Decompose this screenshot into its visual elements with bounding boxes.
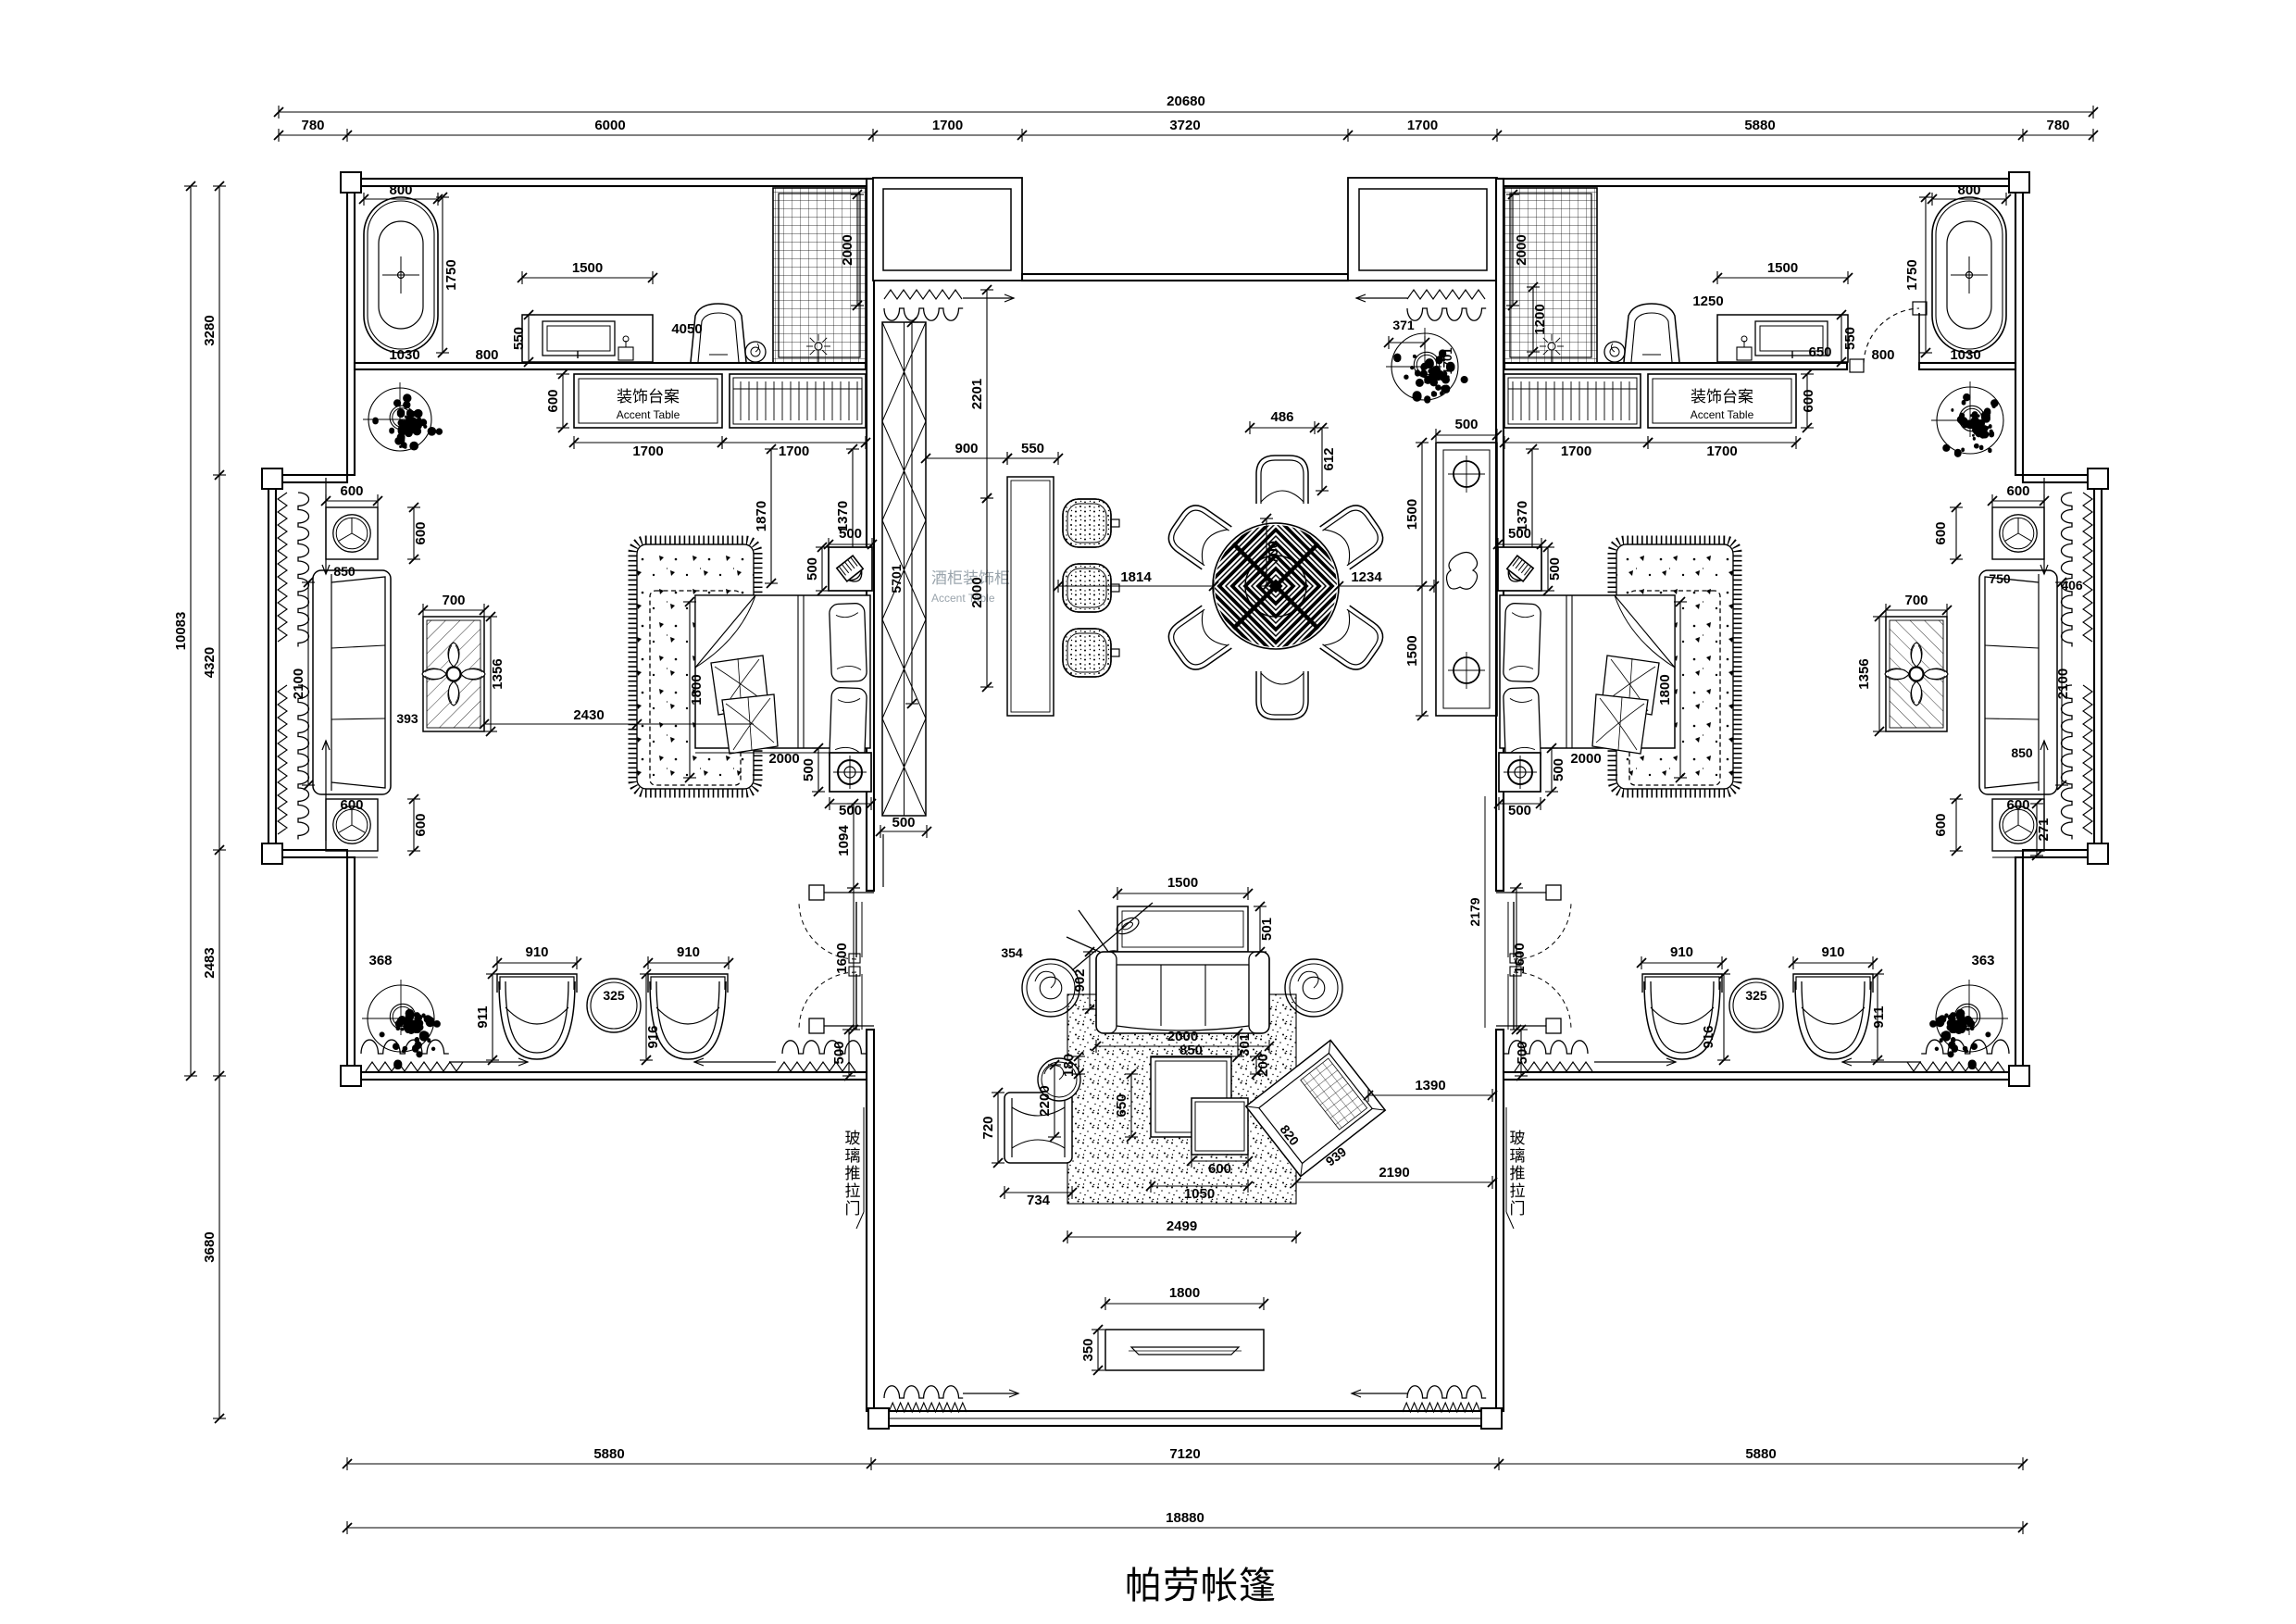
svg-text:1500: 1500 — [572, 260, 603, 276]
svg-text:368: 368 — [368, 953, 392, 968]
svg-text:1814: 1814 — [1120, 569, 1152, 585]
svg-text:600: 600 — [1208, 1161, 1231, 1177]
svg-text:1700: 1700 — [779, 443, 809, 459]
svg-text:1356: 1356 — [490, 658, 505, 689]
svg-text:1700: 1700 — [1561, 443, 1591, 459]
svg-text:装饰台案: 装饰台案 — [1691, 388, 1753, 406]
svg-text:4050: 4050 — [671, 321, 702, 337]
svg-text:1030: 1030 — [389, 347, 419, 363]
svg-text:486: 486 — [1270, 409, 1293, 425]
svg-text:1390: 1390 — [1415, 1078, 1445, 1093]
svg-text:2200: 2200 — [1037, 1085, 1053, 1116]
svg-text:650: 650 — [1114, 1093, 1129, 1117]
svg-text:910: 910 — [677, 944, 700, 960]
svg-text:5880: 5880 — [1744, 118, 1775, 133]
svg-text:600: 600 — [545, 389, 561, 412]
svg-text:393: 393 — [396, 711, 418, 726]
svg-text:1050: 1050 — [1184, 1186, 1215, 1202]
svg-text:2179: 2179 — [1467, 897, 1482, 926]
svg-text:800: 800 — [389, 182, 412, 198]
svg-text:600: 600 — [340, 797, 363, 813]
svg-text:600: 600 — [1801, 389, 1816, 412]
svg-text:325: 325 — [1745, 988, 1767, 1003]
svg-text:180: 180 — [1061, 1054, 1077, 1077]
svg-text:2430: 2430 — [573, 707, 604, 723]
svg-text:200: 200 — [1255, 1054, 1271, 1077]
svg-text:800: 800 — [475, 347, 498, 363]
svg-text:拉: 拉 — [845, 1182, 861, 1200]
svg-text:2000: 2000 — [840, 234, 855, 265]
svg-text:500: 500 — [1508, 803, 1531, 818]
svg-text:501: 501 — [1259, 918, 1275, 941]
svg-text:装饰台案: 装饰台案 — [617, 388, 680, 406]
svg-text:1500: 1500 — [1404, 499, 1420, 530]
svg-text:800: 800 — [1871, 347, 1894, 363]
svg-text:910: 910 — [1670, 944, 1693, 960]
svg-text:600: 600 — [1933, 521, 1949, 544]
svg-text:帕劳帐篷: 帕劳帐篷 — [1125, 1565, 1277, 1606]
svg-text:1250: 1250 — [1692, 294, 1723, 309]
svg-text:700: 700 — [1266, 541, 1281, 564]
svg-text:2190: 2190 — [1379, 1165, 1409, 1181]
svg-text:600: 600 — [413, 813, 429, 836]
svg-text:5880: 5880 — [1745, 1446, 1776, 1462]
svg-text:1200: 1200 — [1532, 304, 1548, 334]
svg-text:600: 600 — [413, 521, 429, 544]
svg-text:612: 612 — [1321, 447, 1337, 470]
svg-text:Accent Table: Accent Table — [931, 592, 995, 605]
svg-text:600: 600 — [2006, 483, 2029, 499]
svg-text:5880: 5880 — [593, 1446, 624, 1462]
svg-text:350: 350 — [1080, 1338, 1096, 1361]
svg-text:3680: 3680 — [202, 1231, 218, 1262]
svg-text:玻: 玻 — [845, 1130, 861, 1147]
svg-text:1800: 1800 — [689, 674, 705, 705]
svg-text:1234: 1234 — [1351, 569, 1382, 585]
svg-text:2499: 2499 — [1167, 1218, 1197, 1234]
svg-text:1870: 1870 — [754, 501, 769, 531]
svg-text:600: 600 — [340, 483, 363, 499]
svg-text:700: 700 — [442, 593, 465, 608]
svg-text:1800: 1800 — [1657, 674, 1673, 705]
svg-text:2100: 2100 — [2055, 668, 2071, 699]
svg-text:500: 500 — [805, 557, 820, 581]
svg-text:1750: 1750 — [443, 259, 459, 290]
svg-text:1700: 1700 — [1706, 443, 1737, 459]
svg-text:18880: 18880 — [1166, 1510, 1204, 1526]
svg-text:780: 780 — [2046, 118, 2069, 133]
svg-text:500: 500 — [1454, 417, 1478, 432]
svg-text:门: 门 — [845, 1200, 861, 1218]
svg-text:301: 301 — [1237, 1033, 1253, 1056]
svg-text:500: 500 — [1508, 526, 1531, 542]
svg-text:1094: 1094 — [836, 825, 852, 856]
svg-text:371: 371 — [1392, 318, 1415, 332]
svg-text:璃: 璃 — [1510, 1147, 1526, 1165]
svg-text:5701: 5701 — [889, 564, 904, 593]
svg-text:3720: 3720 — [1169, 118, 1200, 133]
svg-text:916: 916 — [645, 1025, 661, 1048]
svg-text:Accent Table: Accent Table — [617, 408, 680, 421]
svg-text:500: 500 — [839, 526, 862, 542]
svg-text:1700: 1700 — [632, 443, 663, 459]
svg-text:780: 780 — [301, 118, 324, 133]
svg-text:1600: 1600 — [1512, 943, 1528, 973]
svg-text:910: 910 — [525, 944, 548, 960]
svg-text:2000: 2000 — [768, 751, 799, 767]
svg-text:600: 600 — [2006, 797, 2029, 813]
svg-text:2201: 2201 — [969, 379, 985, 409]
svg-text:20680: 20680 — [1167, 94, 1205, 109]
svg-text:1600: 1600 — [834, 943, 850, 973]
svg-text:750: 750 — [1989, 571, 2011, 586]
svg-text:推: 推 — [1510, 1165, 1526, 1182]
svg-text:1700: 1700 — [1407, 118, 1438, 133]
svg-text:推: 推 — [845, 1165, 861, 1182]
svg-text:4320: 4320 — [202, 647, 218, 678]
svg-text:500: 500 — [839, 803, 862, 818]
svg-text:550: 550 — [1842, 327, 1858, 350]
svg-text:720: 720 — [980, 1116, 996, 1139]
svg-text:500: 500 — [892, 815, 915, 831]
svg-text:2000: 2000 — [1514, 234, 1529, 265]
svg-text:900: 900 — [955, 441, 978, 456]
svg-text:Accent Table: Accent Table — [1691, 408, 1754, 421]
svg-text:700: 700 — [1904, 593, 1928, 608]
svg-text:406: 406 — [2061, 578, 2083, 593]
svg-text:璃: 璃 — [845, 1147, 861, 1165]
svg-text:门: 门 — [1510, 1200, 1526, 1218]
svg-text:850: 850 — [333, 564, 356, 579]
svg-text:911: 911 — [475, 1006, 491, 1028]
svg-text:550: 550 — [1021, 441, 1044, 456]
svg-text:1800: 1800 — [1169, 1285, 1200, 1301]
svg-text:600: 600 — [1933, 813, 1949, 836]
svg-text:玻: 玻 — [1510, 1130, 1526, 1147]
svg-text:2000: 2000 — [969, 577, 985, 607]
svg-text:354: 354 — [1001, 945, 1023, 960]
svg-text:910: 910 — [1821, 944, 1844, 960]
svg-text:1500: 1500 — [1404, 635, 1420, 666]
svg-text:500: 500 — [801, 758, 817, 781]
svg-text:6000: 6000 — [594, 118, 625, 133]
svg-text:500: 500 — [1547, 557, 1563, 581]
svg-text:3280: 3280 — [202, 315, 218, 345]
svg-text:1701: 1701 — [1441, 348, 1454, 375]
svg-text:850: 850 — [2011, 745, 2033, 760]
svg-text:911: 911 — [1871, 1006, 1887, 1028]
svg-text:800: 800 — [1957, 182, 1980, 198]
svg-text:325: 325 — [603, 988, 625, 1003]
svg-text:902: 902 — [1072, 968, 1088, 992]
svg-text:500: 500 — [1551, 758, 1566, 781]
svg-text:1500: 1500 — [1767, 260, 1798, 276]
svg-text:10083: 10083 — [173, 612, 189, 651]
svg-text:850: 850 — [1179, 1043, 1203, 1058]
svg-text:2100: 2100 — [291, 668, 306, 699]
svg-text:1700: 1700 — [932, 118, 963, 133]
svg-text:363: 363 — [1971, 953, 1994, 968]
svg-text:拉: 拉 — [1510, 1182, 1526, 1200]
svg-text:1356: 1356 — [1856, 658, 1872, 689]
svg-text:1500: 1500 — [1167, 875, 1198, 891]
svg-text:1030: 1030 — [1950, 347, 1980, 363]
svg-text:2000: 2000 — [1570, 751, 1601, 767]
svg-text:1750: 1750 — [1904, 259, 1920, 290]
svg-text:2483: 2483 — [202, 947, 218, 978]
svg-text:916: 916 — [1701, 1025, 1716, 1048]
svg-text:650: 650 — [1808, 344, 1831, 360]
svg-text:271: 271 — [2036, 818, 2052, 841]
svg-text:550: 550 — [511, 327, 527, 350]
svg-text:7120: 7120 — [1169, 1446, 1200, 1462]
svg-text:734: 734 — [1027, 1193, 1051, 1208]
